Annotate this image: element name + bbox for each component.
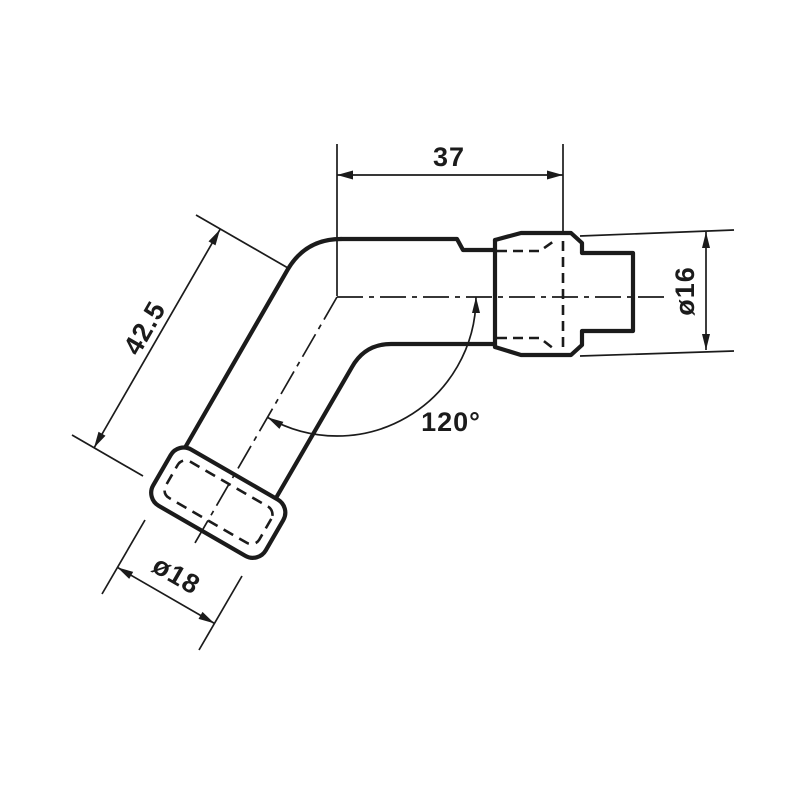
dimension-120deg: 120° [268, 297, 481, 437]
part-outline [186, 233, 633, 498]
dim-18-extension-right [199, 576, 242, 650]
dim-42-5-line [94, 230, 220, 449]
dim-42-5-arrow-bottom [94, 432, 106, 448]
elbow-outer-edge [186, 239, 341, 446]
barrel-top-edge [341, 239, 495, 250]
dim-label-18: ø18 [148, 550, 206, 601]
dim-label-37: 37 [433, 142, 465, 172]
dimension-dia16: ø16 [580, 230, 734, 356]
dim-16-arrow-bottom [702, 334, 710, 350]
spark-plug-cap-technical-drawing: 37 42.5 120° ø16 ø18 [0, 0, 800, 800]
dim-label-16: ø16 [670, 266, 700, 316]
nut-bore-bottom [497, 338, 554, 349]
drawing-page: 37 42.5 120° ø16 ø18 [0, 0, 800, 800]
dim-42-5-extension-bottom [72, 435, 143, 476]
dim-16-extension-bottom [580, 351, 734, 356]
dim-16-extension-top [580, 230, 734, 236]
dim-18-arrow-right [199, 612, 215, 624]
angle-arrow-left [268, 417, 284, 429]
nut-bore-hidden-lines [497, 241, 563, 350]
dim-37-arrow-left [337, 171, 353, 180]
dim-37-arrow-right [547, 171, 563, 180]
dimension-37: 37 [337, 142, 563, 296]
dim-18-arrow-left [117, 567, 133, 579]
nut-bore-top [497, 241, 554, 251]
dim-16-arrow-top [702, 232, 710, 248]
dim-42-5-arrow-top [209, 230, 221, 246]
dim-18-extension-left [102, 520, 145, 594]
dim-label-120: 120° [421, 407, 481, 437]
diagonal-center-line [195, 297, 338, 544]
angle-arrow-right [472, 297, 480, 313]
